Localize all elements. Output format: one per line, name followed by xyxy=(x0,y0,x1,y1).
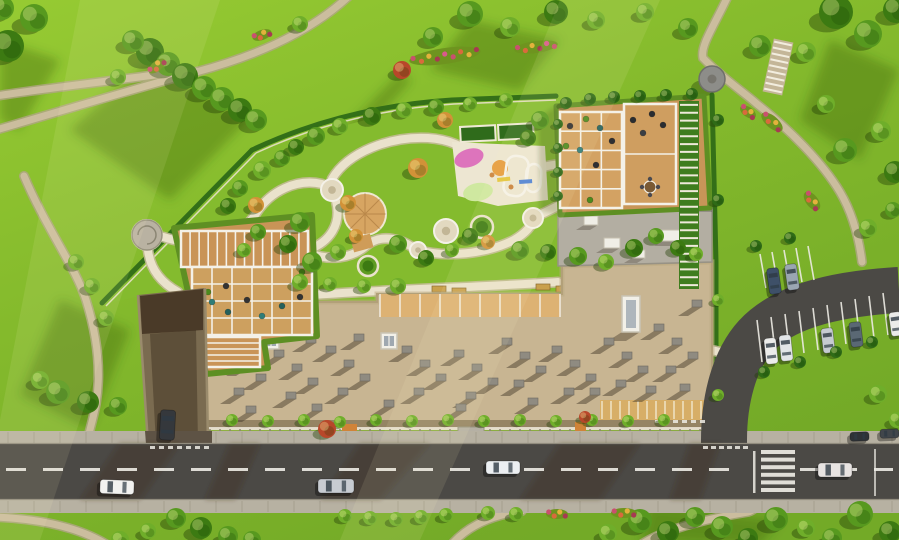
tree-canopy-light xyxy=(766,509,778,521)
tree-canopy-light xyxy=(713,295,719,301)
vent-box xyxy=(360,374,370,381)
tree-canopy-light xyxy=(230,100,242,112)
tree-canopy-light xyxy=(290,141,298,149)
road-dash xyxy=(117,468,137,471)
tree-canopy-light xyxy=(460,4,473,17)
road-dash xyxy=(339,468,359,471)
car-body xyxy=(849,321,864,347)
tree-canopy-light xyxy=(601,526,610,535)
road-dash xyxy=(302,468,322,471)
tree-canopy-light xyxy=(252,226,260,234)
yield-dash xyxy=(719,446,724,449)
car-body xyxy=(850,432,869,442)
tree-canopy-light xyxy=(886,0,899,13)
bench xyxy=(536,284,550,290)
tree-canopy-light xyxy=(680,20,690,30)
tree-canopy-light xyxy=(420,252,428,260)
car-body xyxy=(486,461,520,474)
vent-box xyxy=(586,374,596,381)
vent-box xyxy=(622,352,632,359)
tree-canopy-light xyxy=(713,115,719,121)
tree-canopy-light xyxy=(299,415,305,421)
tree-canopy-light xyxy=(168,510,178,520)
tree-canopy-light xyxy=(819,97,828,106)
tree-canopy-light xyxy=(623,416,629,422)
tree-canopy-light xyxy=(350,230,357,237)
tree-canopy-light xyxy=(440,509,447,516)
crosswalk-stripe xyxy=(761,480,795,484)
pergola-grid xyxy=(200,337,260,367)
tree-canopy-light xyxy=(515,415,521,421)
vent-box xyxy=(292,364,302,371)
dining-chair xyxy=(656,185,660,189)
tree-canopy-light xyxy=(304,254,314,264)
site-plan-svg xyxy=(0,0,899,540)
tree-canopy-light xyxy=(881,523,892,534)
car-rear-window xyxy=(122,482,126,493)
tree-canopy-light xyxy=(255,163,264,172)
tree-canopy-light xyxy=(861,221,870,230)
terrace-furniture-item xyxy=(649,111,655,117)
vent-box xyxy=(286,392,296,399)
tree-canopy-light xyxy=(263,416,269,422)
flowers xyxy=(557,509,562,514)
road-dash xyxy=(265,468,285,471)
vent-box xyxy=(590,388,600,395)
tree-canopy-light xyxy=(23,7,37,21)
terrace-furniture-item xyxy=(587,197,593,203)
car-body xyxy=(818,463,852,477)
tree-canopy-light xyxy=(238,244,245,251)
crosswalk-stripe xyxy=(761,465,795,469)
path-node xyxy=(321,179,343,201)
dining-table xyxy=(644,181,656,193)
tree-canopy-light xyxy=(713,195,719,201)
flowers xyxy=(563,513,568,518)
car xyxy=(483,461,520,477)
vent-box xyxy=(344,360,354,367)
flower-bed xyxy=(611,508,637,518)
tree-canopy-light xyxy=(850,504,863,517)
yield-dash xyxy=(204,446,209,449)
tree-canopy-light xyxy=(320,422,329,431)
tree-canopy-light xyxy=(342,197,350,205)
tree-canopy-light xyxy=(687,89,693,95)
tree-canopy-light xyxy=(687,509,697,519)
tree-canopy-light xyxy=(887,204,895,212)
tree-canopy-light xyxy=(227,415,233,421)
vent-box xyxy=(234,388,244,395)
tree-canopy-light xyxy=(222,200,230,208)
tree-canopy-light xyxy=(627,241,636,250)
vent-box xyxy=(528,398,538,405)
tree-canopy-light xyxy=(482,507,489,514)
tree-canopy-light xyxy=(425,29,435,39)
tree-canopy-light xyxy=(835,140,847,152)
terrace-furniture-item xyxy=(640,130,646,136)
tree-canopy-light xyxy=(309,129,318,138)
vent-box xyxy=(672,338,682,345)
tree-canopy-light xyxy=(395,63,404,72)
terrace-furniture-item xyxy=(279,303,285,309)
car-body xyxy=(779,334,794,361)
yield-dash xyxy=(186,446,191,449)
tree-canopy-light xyxy=(891,414,899,422)
flowers xyxy=(552,513,557,518)
vent-box xyxy=(616,380,626,387)
yield-dash xyxy=(159,446,164,449)
car-windshield xyxy=(884,431,887,437)
terrace-furniture-item xyxy=(297,294,303,300)
car-body xyxy=(764,337,779,364)
vent-box xyxy=(246,406,256,413)
vent-box xyxy=(654,324,664,331)
yield-dash xyxy=(727,446,732,449)
flowers xyxy=(631,512,636,517)
car xyxy=(156,409,176,443)
tree-canopy-light xyxy=(799,521,808,530)
tree-canopy-light xyxy=(551,416,557,422)
tree-canopy-light xyxy=(334,120,342,128)
skylight xyxy=(381,333,397,349)
tree-canopy-light xyxy=(751,241,757,247)
flowers xyxy=(625,508,630,513)
tree-canopy-light xyxy=(713,390,719,396)
tree-canopy-light xyxy=(294,18,302,26)
tree-canopy-light xyxy=(798,44,808,54)
tree-canopy-light xyxy=(365,109,374,118)
terrace-furniture-item xyxy=(244,297,250,303)
tree-canopy-light xyxy=(398,104,406,112)
tree-canopy-light xyxy=(439,114,447,122)
yield-dash xyxy=(682,420,687,423)
tree-canopy-light xyxy=(250,199,258,207)
tree-canopy-light xyxy=(672,242,680,250)
vent-box xyxy=(646,386,656,393)
road-dash xyxy=(561,468,581,471)
tree-canopy-light xyxy=(873,123,883,133)
tree-canopy-light xyxy=(464,98,471,105)
car-windshield xyxy=(825,465,830,476)
tree-canopy-light xyxy=(281,237,290,246)
road-dash xyxy=(524,468,544,471)
road-dash xyxy=(191,468,211,471)
car-windshield xyxy=(854,434,857,440)
flowers xyxy=(546,509,551,514)
tree-canopy-light xyxy=(446,244,453,251)
dining-chair xyxy=(640,185,644,189)
tree-canopy-light xyxy=(857,23,871,37)
dining-chair xyxy=(648,193,652,197)
tree-canopy-light xyxy=(659,415,665,421)
road-dash xyxy=(672,468,692,471)
vent-box xyxy=(564,388,574,395)
tree-canopy-light xyxy=(335,417,341,423)
flower-bed xyxy=(546,509,568,519)
vent-box xyxy=(338,388,348,395)
tree-canopy-light xyxy=(713,518,724,529)
car-body xyxy=(100,479,134,494)
vent-box xyxy=(552,346,562,353)
road-dash xyxy=(228,468,248,471)
vent-box xyxy=(688,352,698,359)
tree-canopy-light xyxy=(339,510,346,517)
vent-box xyxy=(570,360,580,367)
crosswalk-stripe xyxy=(761,488,795,492)
hedge-planter xyxy=(460,125,496,142)
flowers xyxy=(612,508,617,513)
terrace-furniture-item xyxy=(225,309,231,315)
tree-canopy-light xyxy=(294,276,302,284)
tree-canopy-light xyxy=(871,387,880,396)
tree-canopy-light xyxy=(391,237,400,246)
yield-dash xyxy=(700,420,705,423)
tree-canopy-light xyxy=(635,91,641,97)
tree-canopy-light xyxy=(740,530,750,540)
vent-box xyxy=(274,350,284,357)
crosswalk-stripe xyxy=(761,473,795,477)
tree-canopy-light xyxy=(324,278,331,285)
vent-box xyxy=(402,346,412,353)
car-body xyxy=(318,479,354,493)
path-node xyxy=(358,256,378,276)
road-dash xyxy=(450,468,470,471)
yield-dash xyxy=(168,446,173,449)
car xyxy=(761,337,779,367)
road-dash xyxy=(874,468,893,471)
yield-dash xyxy=(177,446,182,449)
tree-canopy-light xyxy=(751,37,762,48)
vent-box xyxy=(666,366,676,373)
flowers xyxy=(618,512,623,517)
tree-canopy-light xyxy=(212,89,224,101)
tree-canopy-light xyxy=(500,94,507,101)
yield-dash xyxy=(195,446,200,449)
crosswalk-stripe xyxy=(761,450,795,454)
car-windshield xyxy=(162,416,174,421)
car-body xyxy=(880,429,899,439)
tree-canopy-light xyxy=(759,367,765,373)
car-rear-window xyxy=(161,429,173,433)
vent-box xyxy=(312,404,322,411)
terrace-furniture-item xyxy=(223,283,229,289)
tree-canopy-light xyxy=(502,19,512,29)
dining-chair xyxy=(648,177,652,181)
tree-canopy-light xyxy=(650,230,658,238)
vent-box xyxy=(384,400,394,407)
car-windshield xyxy=(493,463,498,473)
car-body xyxy=(159,410,176,441)
car xyxy=(815,463,852,480)
terrace-furniture-item xyxy=(209,299,215,305)
car xyxy=(776,334,794,364)
road-dash xyxy=(80,468,100,471)
tree-canopy-light xyxy=(111,399,120,408)
car-rear-window xyxy=(840,465,844,476)
tree-canopy-light xyxy=(358,280,365,287)
road-dash xyxy=(598,468,618,471)
vent-box xyxy=(256,374,266,381)
car-rear-window xyxy=(342,481,346,492)
tree-canopy-light xyxy=(659,523,670,534)
vent-box xyxy=(638,366,648,373)
tree-canopy-light xyxy=(690,248,697,255)
path-node xyxy=(434,219,458,243)
yield-dash xyxy=(703,446,708,449)
tree-canopy-light xyxy=(292,214,302,224)
tree-canopy-light xyxy=(510,508,517,515)
tree-canopy-light xyxy=(886,163,897,174)
yield-dash xyxy=(673,420,678,423)
vent-box xyxy=(536,366,546,373)
tree-canopy-light xyxy=(430,101,438,109)
tree-canopy-light xyxy=(276,152,284,160)
car-rear-window xyxy=(892,430,894,436)
tree-canopy-light xyxy=(371,415,377,421)
tree-canopy-light xyxy=(220,528,230,538)
aerial-site-plan xyxy=(0,0,899,540)
terrace-furniture-item xyxy=(259,313,265,319)
car-windshield xyxy=(107,481,113,492)
road-dash xyxy=(154,468,174,471)
tree-canopy-light xyxy=(247,111,258,122)
road-dash xyxy=(709,468,729,471)
yield-dash xyxy=(150,446,155,449)
tree-canopy-light xyxy=(142,525,150,533)
terrace-furniture-item xyxy=(593,162,599,168)
vent-box xyxy=(354,334,364,341)
car-rear-window xyxy=(508,463,512,473)
yield-dash xyxy=(691,420,696,423)
vent-box xyxy=(326,346,336,353)
vent-box xyxy=(692,300,702,307)
vent-box xyxy=(680,384,690,391)
tree-canopy-light xyxy=(580,412,586,418)
road-dash xyxy=(635,468,655,471)
vent-box xyxy=(514,380,524,387)
terrace-furniture-item xyxy=(660,122,666,128)
crosswalk-stripe xyxy=(761,458,795,462)
tree-canopy-light xyxy=(194,78,206,90)
tree-canopy-light xyxy=(392,280,400,288)
vent-box xyxy=(520,352,530,359)
car xyxy=(315,479,354,496)
tree-canopy-light xyxy=(831,347,837,353)
tree-canopy-light xyxy=(661,90,667,96)
yield-dash xyxy=(711,446,716,449)
tree-canopy-light xyxy=(795,357,801,363)
terrace-furniture-item xyxy=(630,117,636,123)
car-windshield xyxy=(326,481,332,492)
tree-canopy-light xyxy=(600,256,608,264)
tree-canopy-light xyxy=(332,246,340,254)
tree-canopy-light xyxy=(571,249,580,258)
terrace-furniture-item xyxy=(609,138,615,144)
tree-canopy-light xyxy=(785,233,791,239)
vent-box xyxy=(604,338,614,345)
tree-canopy-light xyxy=(479,416,485,422)
tree-canopy-light xyxy=(234,182,242,190)
yield-dash xyxy=(735,446,740,449)
tree-canopy-light xyxy=(824,530,834,540)
tree-canopy-light xyxy=(192,519,203,530)
tree-canopy-light xyxy=(410,160,420,170)
yield-dash xyxy=(743,446,748,449)
car xyxy=(97,479,135,497)
tree-canopy-light xyxy=(867,337,873,343)
vent-box xyxy=(308,378,318,385)
car-rear-window xyxy=(862,433,864,439)
